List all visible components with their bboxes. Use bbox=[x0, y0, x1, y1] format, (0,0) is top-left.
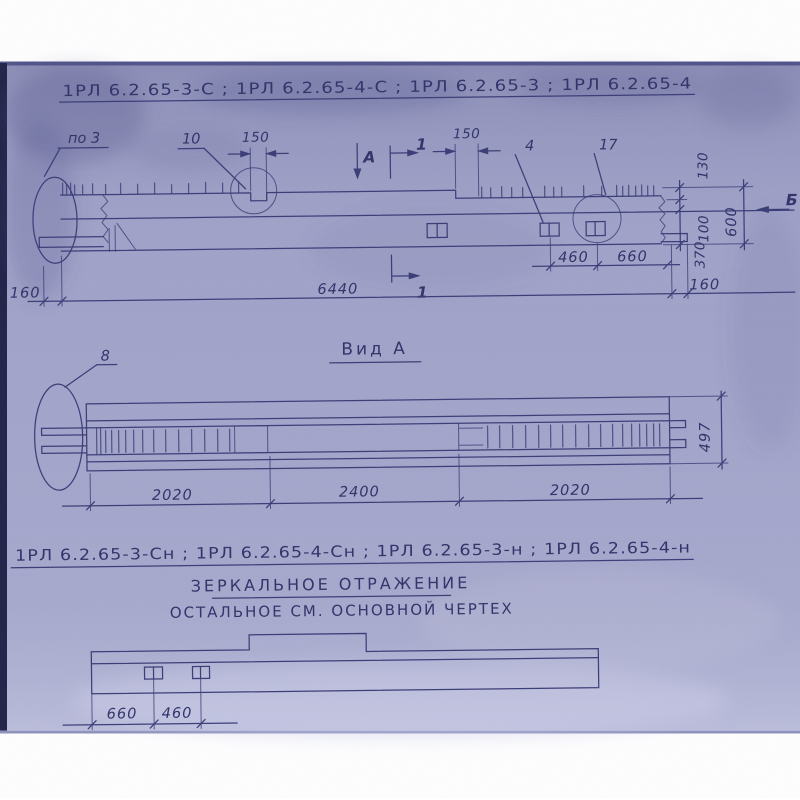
dim-100-label: 100 bbox=[696, 215, 712, 242]
mirror-caption-1: ЗЕРКАЛЬНОЕ ОТРАЖЕНИЕ bbox=[191, 573, 471, 595]
dim-150-right-label: 150 bbox=[453, 126, 480, 142]
callout-8-label: 8 bbox=[101, 349, 110, 365]
dim-370-label: 370 bbox=[692, 241, 708, 268]
view-arrow-a-label: А bbox=[362, 148, 375, 166]
callout-10-label: 10 bbox=[182, 131, 201, 147]
scanned-drawing-page: 1РЛ 6.2.65-3-С ; 1РЛ 6.2.65-4-С ; 1РЛ 6.… bbox=[0, 0, 800, 800]
callout-4-label: 4 bbox=[525, 138, 534, 154]
dim-160-right-label: 160 bbox=[689, 277, 720, 293]
callout-po3-label: по 3 bbox=[68, 131, 100, 147]
dim-150-left-label: 150 bbox=[242, 130, 269, 146]
callout-17-label: 17 bbox=[599, 137, 618, 153]
dim-660-label: 660 bbox=[617, 249, 648, 265]
mirror-dim-460-label: 460 bbox=[162, 706, 193, 722]
dim-2020-left-label: 2020 bbox=[152, 488, 193, 504]
dim-2020-right-label: 2020 bbox=[550, 483, 591, 499]
section-mark-b-label: Б bbox=[786, 191, 798, 209]
dim-6440-label: 6440 bbox=[317, 282, 358, 298]
dim-2400-label: 2400 bbox=[339, 484, 380, 500]
section-mark-1-bottom-label: 1 bbox=[417, 284, 428, 302]
dim-460-label: 460 bbox=[558, 250, 589, 266]
dim-160-left-label: 160 bbox=[10, 285, 41, 301]
dim-497-label: 497 bbox=[698, 421, 714, 452]
drawing-canvas: 1РЛ 6.2.65-3-С ; 1РЛ 6.2.65-4-С ; 1РЛ 6.… bbox=[0, 0, 800, 800]
view-a-title: Вид А bbox=[341, 339, 408, 360]
dim-130-label: 130 bbox=[695, 152, 711, 179]
mirror-dim-660-label: 660 bbox=[107, 706, 138, 722]
section-mark-1-top-label: 1 bbox=[416, 136, 427, 154]
dim-600-label: 600 bbox=[724, 206, 740, 237]
